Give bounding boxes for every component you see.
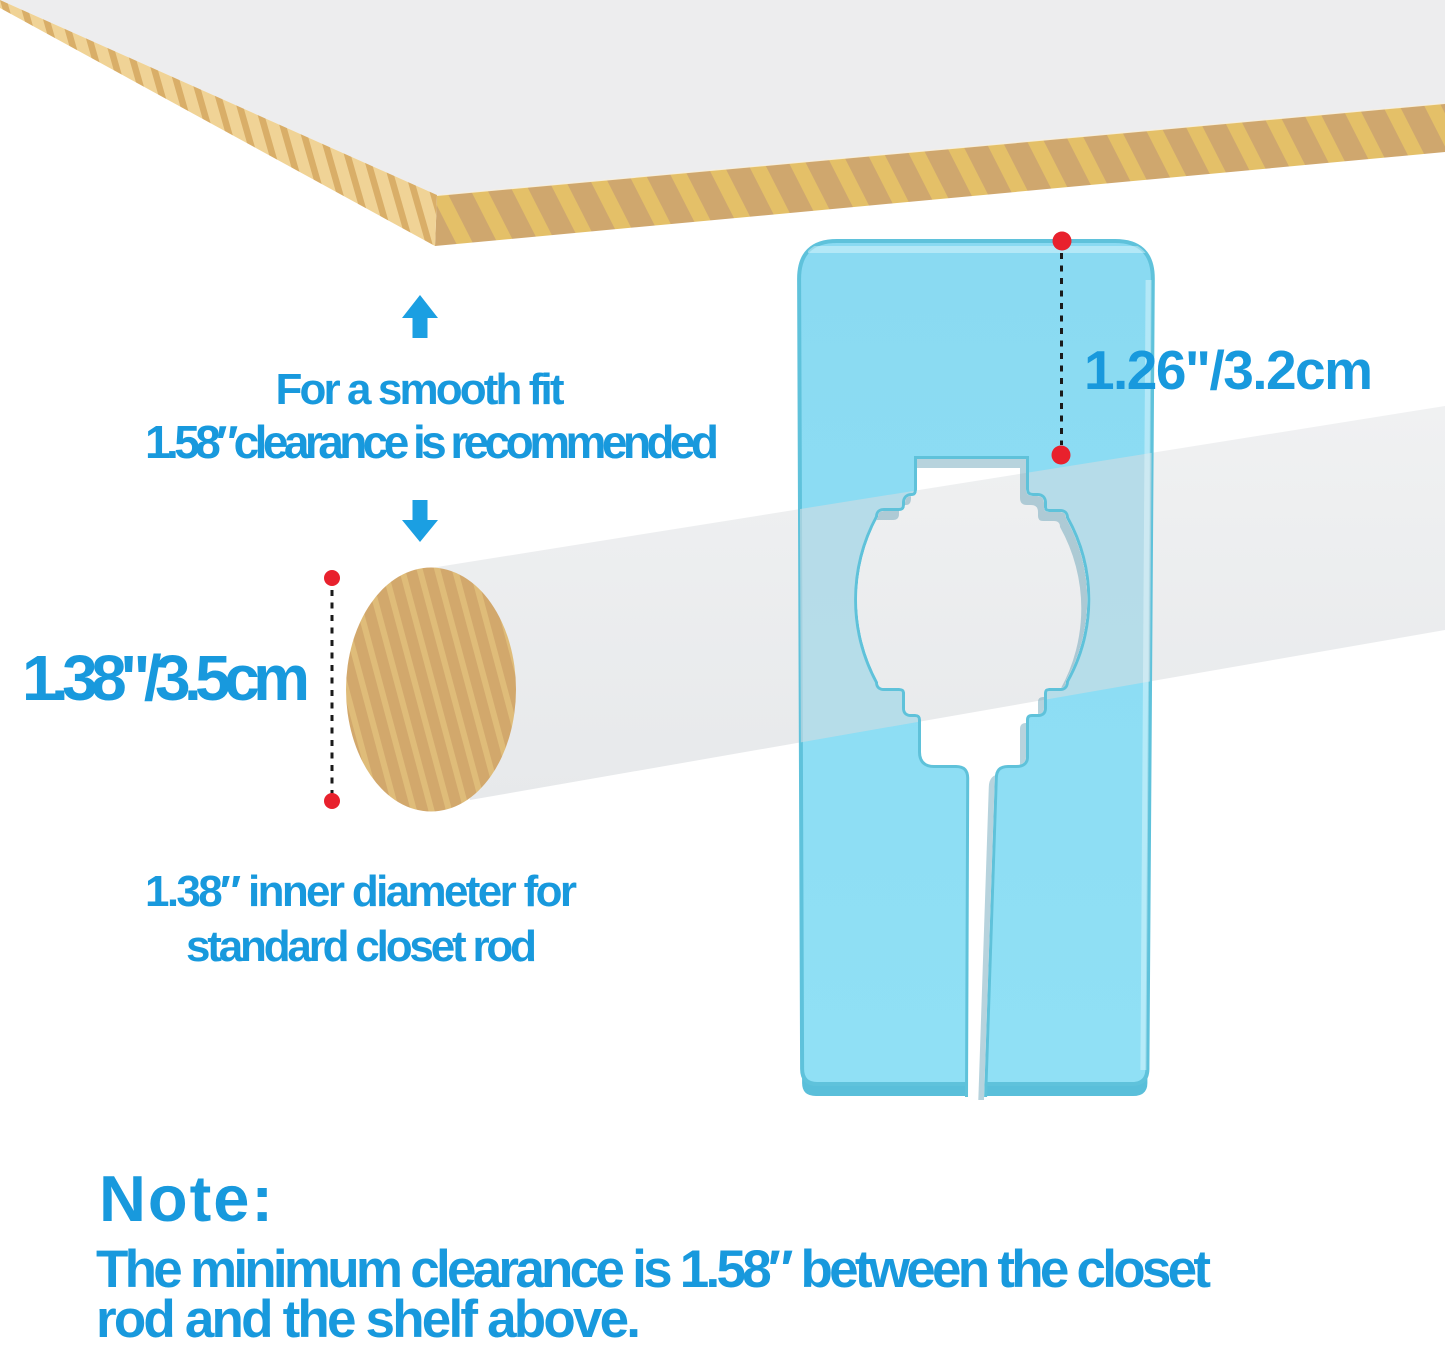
svg-text:1.38"/3.5cm: 1.38"/3.5cm	[22, 642, 310, 714]
svg-text:Note:: Note:	[99, 1162, 273, 1235]
svg-text:standard closet rod: standard closet rod	[186, 922, 537, 971]
svg-text:rod and the shelf above.: rod and the shelf above.	[96, 1290, 641, 1347]
svg-text:1.26"/3.2cm: 1.26"/3.2cm	[1084, 339, 1373, 401]
svg-text:1.58″clearance is recommended: 1.58″clearance is recommended	[145, 416, 719, 468]
svg-text:1.38″ inner diameter for: 1.38″ inner diameter for	[145, 867, 577, 916]
svg-text:For a smooth fit: For a smooth fit	[276, 365, 565, 414]
